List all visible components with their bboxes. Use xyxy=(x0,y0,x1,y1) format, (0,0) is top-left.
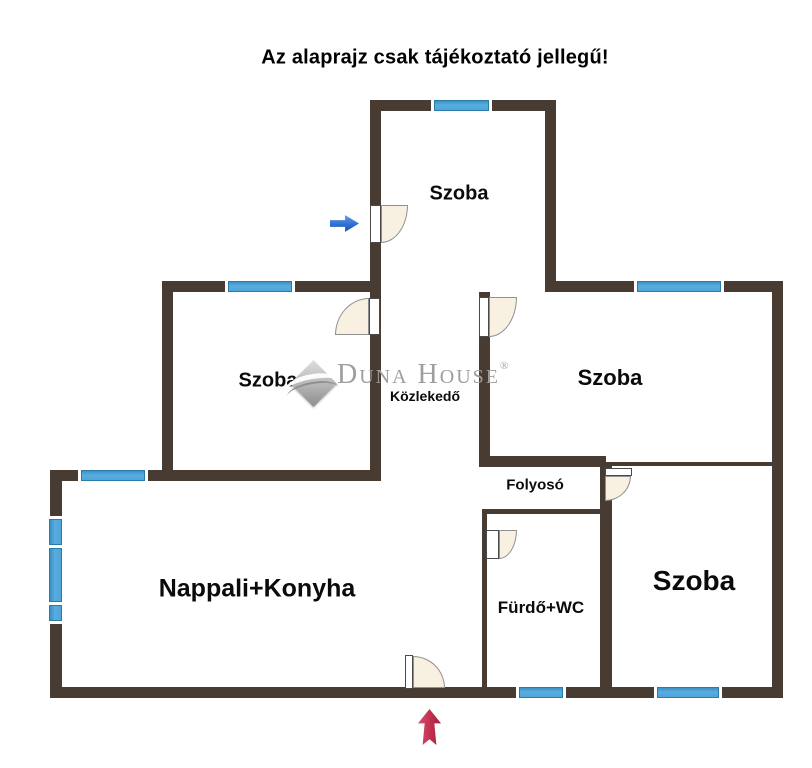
duna-house-diamond-logo-icon xyxy=(289,359,338,408)
window-szoba-right xyxy=(634,281,724,292)
window-nappali-top xyxy=(78,470,148,481)
wall-top-room-right xyxy=(545,100,556,292)
window-glass xyxy=(657,687,719,698)
window-glass xyxy=(228,281,292,292)
window-glass xyxy=(637,281,721,292)
door-arc-szoba-left xyxy=(335,298,369,335)
door-leaf-nappali xyxy=(405,655,413,689)
window-glass xyxy=(49,519,62,545)
wall-left-upper xyxy=(162,281,173,481)
blue-right-arrow-icon xyxy=(330,214,359,233)
wall-right-outer xyxy=(772,281,783,698)
door-arc-szoba-br xyxy=(605,476,631,501)
room-label-folyoso: Folyosó xyxy=(506,477,564,494)
room-label-furdo-wc: Fürdő+WC xyxy=(498,598,584,618)
room-label-szoba-top: Szoba xyxy=(430,183,489,206)
window-glass xyxy=(49,548,62,602)
registered-trademark-symbol: ® xyxy=(500,360,508,372)
room-label-kozlekedo: Közlekedő xyxy=(390,388,460,404)
door-leaf-szoba-left xyxy=(369,298,380,335)
window-furdo xyxy=(516,687,566,698)
window-glass xyxy=(81,470,145,481)
window-glass xyxy=(49,605,62,621)
window-szoba-br xyxy=(654,687,722,698)
wall-folyoso-top xyxy=(479,456,606,467)
wall-furdo-top-thin xyxy=(487,509,600,514)
window-szoba-left xyxy=(225,281,295,292)
window-nappali-left xyxy=(49,516,62,624)
window-top-room xyxy=(431,100,492,111)
disclaimer-title: Az alaprajz csak tájékoztató jellegű! xyxy=(261,47,609,70)
floorplan-canvas: Az alaprajz csak tájékoztató jellegű! Sz… xyxy=(0,0,812,768)
brand-name: Duna House xyxy=(337,359,500,390)
door-leaf-szoba-br xyxy=(605,468,632,476)
door-leaf-szoba-right xyxy=(479,297,489,337)
room-label-szoba-bottom-right: Szoba xyxy=(653,565,735,597)
wall-szoba-br-top-thin xyxy=(606,462,772,466)
watermark-brand-text: Duna House® xyxy=(337,361,508,389)
door-leaf-top-room xyxy=(370,205,381,243)
door-arc-top-room xyxy=(381,205,408,243)
door-arc-nappali xyxy=(413,656,445,688)
door-leaf-furdo xyxy=(486,530,499,559)
door-arc-szoba-right xyxy=(489,297,517,337)
door-arc-furdo xyxy=(499,530,517,559)
window-glass xyxy=(519,687,563,698)
window-glass xyxy=(434,100,489,111)
red-up-arrow-icon xyxy=(418,709,441,745)
room-label-nappali-konyha: Nappali+Konyha xyxy=(159,575,356,604)
room-label-szoba-right: Szoba xyxy=(578,365,643,391)
